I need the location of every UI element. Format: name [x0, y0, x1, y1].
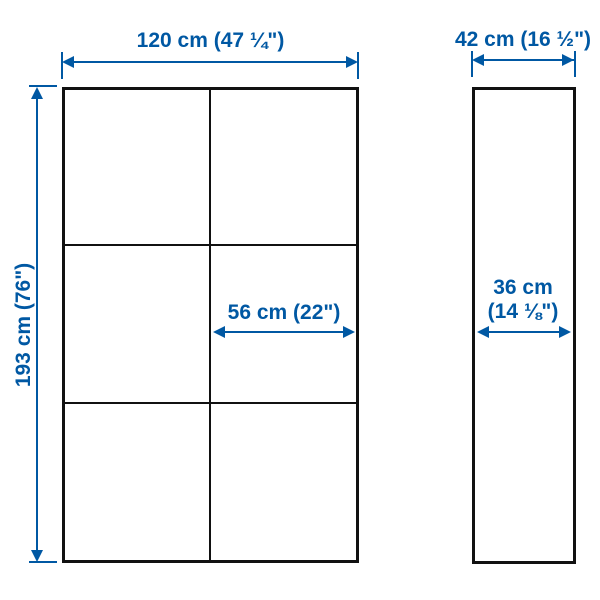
overall-depth-dimension-line — [474, 59, 574, 61]
inner-depth-label-line1: 36 cm — [458, 276, 588, 300]
inner-depth-label-line2: (14 ⅛") — [458, 300, 588, 324]
dimension-end-tick — [29, 85, 57, 87]
arrow-left-icon — [477, 326, 489, 338]
inner-depth-label: 36 cm (14 ⅛") — [458, 276, 588, 324]
dimension-end-tick — [357, 52, 359, 79]
overall-width-dimension-line — [64, 61, 356, 63]
front-view-vertical-divider — [209, 87, 211, 563]
arrow-right-icon — [559, 326, 571, 338]
dimension-end-tick — [471, 51, 473, 77]
section-width-dimension-line — [216, 331, 352, 333]
overall-height-label: 193 cm (76") — [12, 263, 36, 387]
dimension-end-tick — [29, 561, 57, 563]
arrow-up-icon — [31, 87, 43, 99]
dimension-diagram: 120 cm (47 ¼") 42 cm (16 ½") 193 cm (76"… — [0, 0, 600, 600]
section-width-label: 56 cm (22") — [211, 301, 357, 325]
dimension-end-tick — [574, 51, 576, 77]
dimension-end-tick — [61, 52, 63, 79]
inner-depth-dimension-line — [480, 331, 568, 333]
overall-width-label: 120 cm (47 ¼") — [62, 29, 359, 53]
arrow-left-icon — [62, 56, 74, 68]
overall-height-dimension-line — [36, 89, 38, 560]
arrow-left-icon — [213, 326, 225, 338]
arrow-right-icon — [562, 54, 574, 66]
front-view-horizontal-divider-2 — [62, 402, 359, 404]
arrow-right-icon — [343, 326, 355, 338]
arrow-left-icon — [472, 54, 484, 66]
front-view-horizontal-divider-1 — [62, 244, 359, 246]
overall-depth-label: 42 cm (16 ½") — [440, 28, 600, 52]
